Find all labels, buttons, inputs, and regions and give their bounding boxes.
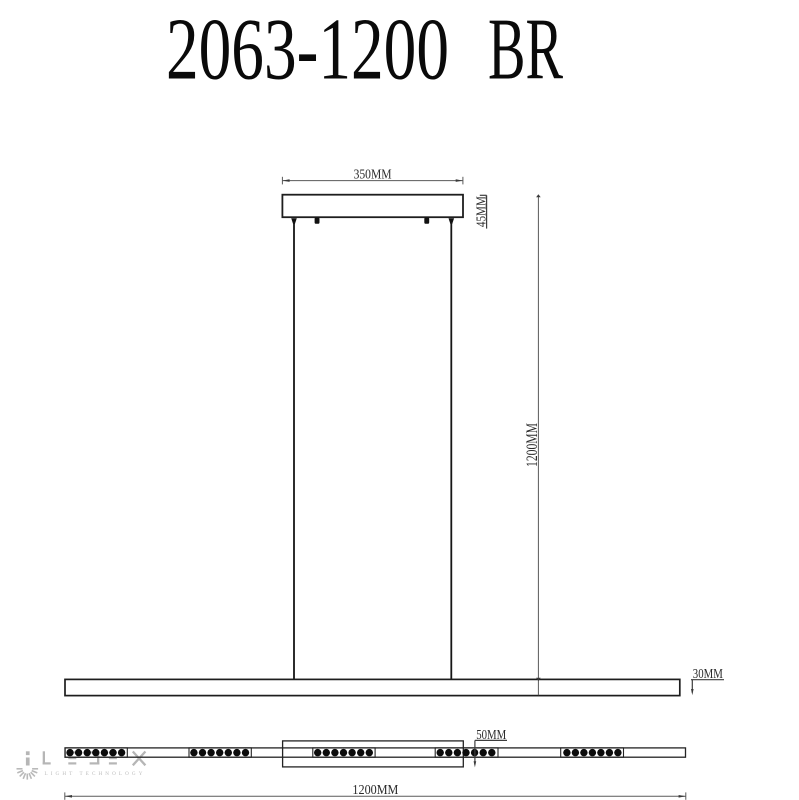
svg-text:45MM: 45MM (474, 196, 489, 227)
svg-text:LIGHT TECHNOLOGY: LIGHT TECHNOLOGY (45, 772, 146, 777)
svg-text:30MM: 30MM (693, 666, 723, 681)
svg-text:2063-1200: 2063-1200 (166, 2, 449, 99)
svg-text:BR: BR (488, 2, 563, 99)
svg-text:350MM: 350MM (354, 167, 392, 182)
svg-text:1200MM: 1200MM (352, 782, 398, 797)
svg-text:1200MM: 1200MM (524, 423, 541, 467)
